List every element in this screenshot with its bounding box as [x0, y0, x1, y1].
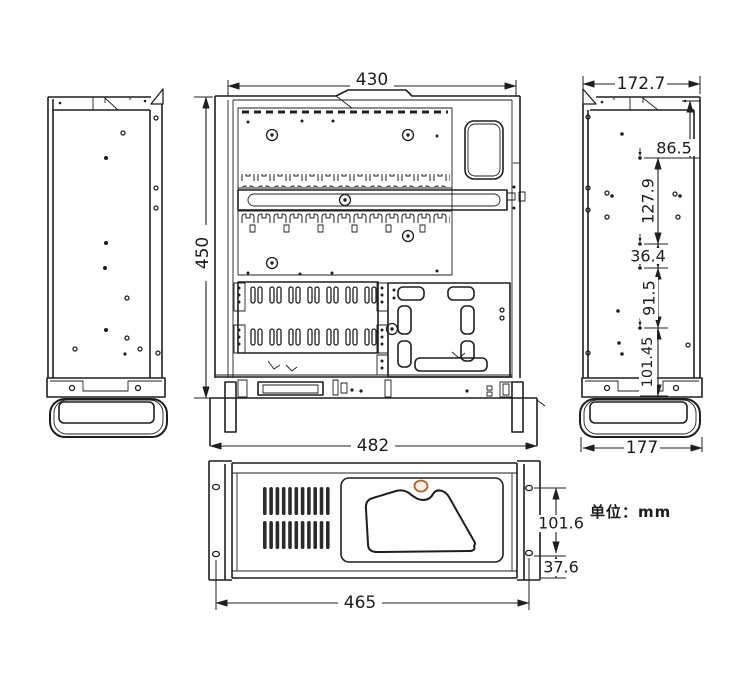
hole-pitch-1-label: 127.9: [639, 178, 658, 224]
vented-drive-tray: [238, 282, 378, 353]
flange-width-label: 482: [357, 436, 389, 456]
dim-depth-450: 450: [193, 97, 213, 398]
dim-side-top-width-172-7: 172.7: [583, 74, 700, 94]
corner-flap: [583, 89, 596, 104]
rear-panel-strip: [210, 375, 537, 398]
vent-grille: [263, 487, 330, 549]
hole-pitch-3-label: 91.5: [640, 280, 659, 316]
ear-hole: [526, 485, 533, 490]
dim-front-width-465: 465: [216, 558, 529, 613]
side-top-width-label: 172.7: [617, 74, 666, 94]
ear-hole: [213, 551, 220, 556]
dim-chain-right-view: 86.5 127.9 36.4 91.5 101.45: [629, 101, 700, 396]
ear-hole-spacing-label: 101.6: [538, 514, 584, 533]
unit-note: 单位：mm: [590, 503, 671, 521]
rear-hole-offset-label: 86.5: [656, 139, 692, 158]
handle: [580, 399, 700, 437]
left-side-view: [47, 89, 167, 437]
dim-top-width-430: 430: [228, 70, 516, 96]
front-width-label: 465: [344, 593, 376, 613]
dimension-drawing: 450 430 482 172.7 86.5 127.9 36.4 91.5 1…: [0, 0, 750, 684]
handle: [50, 399, 167, 437]
dim-ear-hole-bottom-37-6: 37.6: [541, 556, 581, 578]
top-view: [210, 90, 545, 446]
ear-hole: [213, 484, 220, 489]
psu-bracket-plate: [388, 283, 510, 377]
ear-hole: [526, 550, 533, 555]
card-clip-strips: [238, 174, 452, 232]
hole-pitch-2-label: 36.4: [630, 247, 666, 266]
door-window: [366, 490, 475, 552]
front-view: [209, 461, 540, 580]
lock-icon: [415, 481, 428, 492]
dim-side-bottom-width-177: 177: [581, 437, 702, 458]
chassis-drawing-svg: 450 430 482 172.7 86.5 127.9 36.4 91.5 1…: [0, 0, 750, 684]
rear-cutout: [465, 121, 503, 179]
depth-label: 450: [193, 237, 213, 269]
top-width-label: 430: [356, 70, 388, 90]
hole-pitch-4-label: 101.45: [640, 337, 656, 388]
dim-flange-width-482: 482: [210, 436, 537, 456]
hold-down-bar: [238, 190, 507, 210]
side-bottom-width-label: 177: [626, 438, 658, 458]
ear-hole-bottom-label: 37.6: [543, 558, 579, 577]
corner-flap: [151, 89, 163, 104]
